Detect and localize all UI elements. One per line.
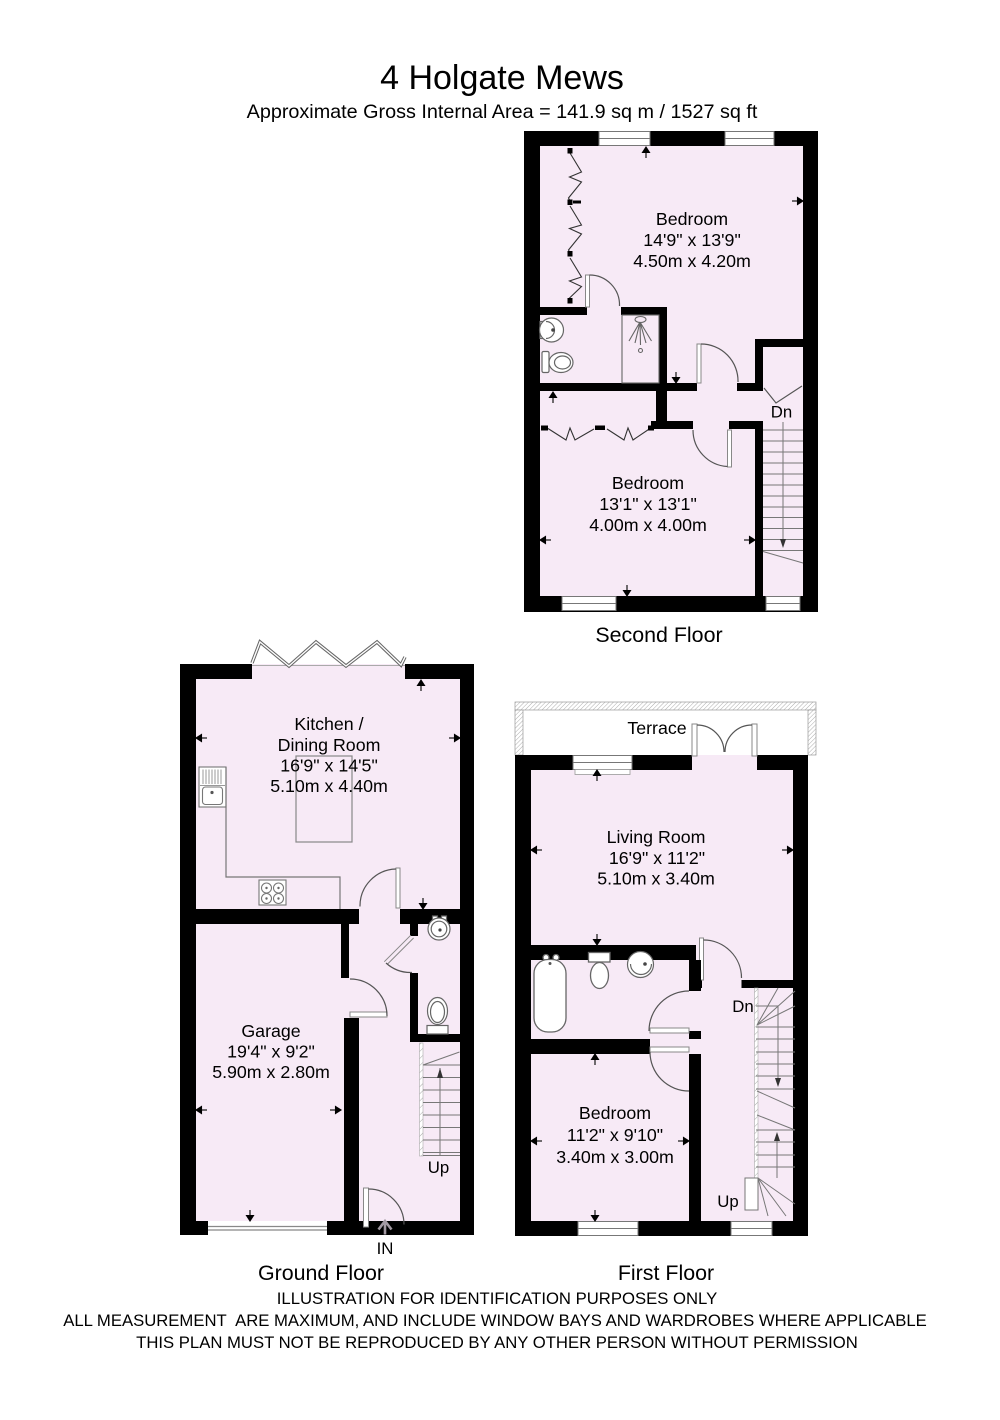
svg-text:11'2" x 9'10": 11'2" x 9'10" xyxy=(567,1125,663,1145)
svg-text:Up: Up xyxy=(717,1192,738,1211)
svg-text:14'9" x 13'9": 14'9" x 13'9" xyxy=(643,230,741,250)
svg-text:Living Room: Living Room xyxy=(607,827,706,847)
svg-text:5.90m x 2.80m: 5.90m x 2.80m xyxy=(212,1062,330,1082)
svg-text:16'9" x 11'2": 16'9" x 11'2" xyxy=(609,848,705,868)
svg-text:ALL MEASUREMENT ARE MAXIMUM,: ALL MEASUREMENT ARE MAXIMUM, AND INCLUDE… xyxy=(63,1311,927,1330)
svg-text:Ground Floor: Ground Floor xyxy=(258,1261,384,1285)
svg-text:THIS PLAN MUST NOT BE REPRODUC: THIS PLAN MUST NOT BE REPRODUCED BY ANY … xyxy=(136,1333,858,1352)
svg-text:3.40m x 3.00m: 3.40m x 3.00m xyxy=(556,1147,674,1167)
svg-text:IN: IN xyxy=(377,1239,394,1258)
svg-text:Dn: Dn xyxy=(771,403,792,422)
svg-text:16'9" x 14'5": 16'9" x 14'5" xyxy=(280,756,378,776)
svg-text:5.10m x 4.40m: 5.10m x 4.40m xyxy=(270,776,388,796)
svg-text:ILLUSTRATION FOR IDENTIFICATIO: ILLUSTRATION FOR IDENTIFICATION PURPOSES… xyxy=(277,1289,717,1308)
svg-text:Second Floor: Second Floor xyxy=(595,623,722,647)
svg-text:Bedroom: Bedroom xyxy=(579,1103,651,1123)
svg-text:13'1" x 13'1": 13'1" x 13'1" xyxy=(599,494,697,514)
svg-text:4.50m x 4.20m: 4.50m x 4.20m xyxy=(633,251,751,271)
svg-text:Kitchen /: Kitchen / xyxy=(294,714,363,734)
svg-text:Terrace: Terrace xyxy=(627,718,686,738)
svg-text:19'4" x 9'2": 19'4" x 9'2" xyxy=(227,1042,315,1062)
svg-text:5.10m x 3.40m: 5.10m x 3.40m xyxy=(597,869,715,889)
svg-text:Bedroom: Bedroom xyxy=(612,473,684,493)
svg-text:Garage: Garage xyxy=(241,1021,300,1041)
svg-text:4 Holgate Mews: 4 Holgate Mews xyxy=(380,59,624,97)
svg-text:Dining Room: Dining Room xyxy=(278,735,381,755)
svg-text:4.00m x 4.00m: 4.00m x 4.00m xyxy=(589,515,707,535)
svg-text:Bedroom: Bedroom xyxy=(656,209,728,229)
svg-text:Dn: Dn xyxy=(732,997,753,1016)
svg-text:Approximate Gross Internal Are: Approximate Gross Internal Area = 141.9 … xyxy=(247,101,758,123)
svg-text:Up: Up xyxy=(428,1158,449,1177)
svg-text:First Floor: First Floor xyxy=(618,1261,714,1285)
